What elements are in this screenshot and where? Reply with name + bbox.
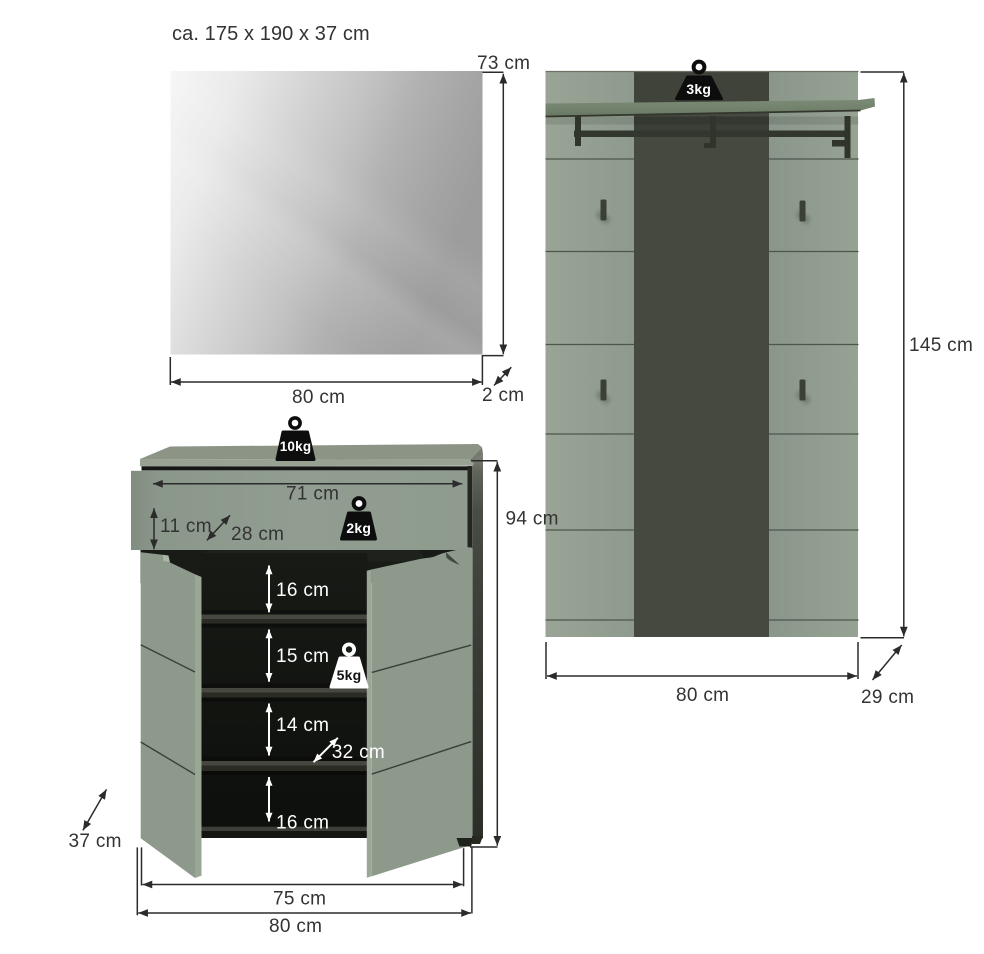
svg-text:29 cm: 29 cm xyxy=(861,687,914,708)
svg-text:28 cm: 28 cm xyxy=(231,524,284,545)
svg-text:71 cm: 71 cm xyxy=(286,484,339,505)
svg-text:80 cm: 80 cm xyxy=(292,387,345,408)
svg-text:80 cm: 80 cm xyxy=(676,685,729,706)
svg-text:5kg: 5kg xyxy=(337,667,362,683)
svg-text:16 cm: 16 cm xyxy=(276,813,329,834)
svg-text:3kg: 3kg xyxy=(686,81,711,97)
svg-text:16 cm: 16 cm xyxy=(276,580,329,601)
svg-text:11 cm: 11 cm xyxy=(160,516,212,537)
svg-text:37 cm: 37 cm xyxy=(69,831,122,852)
svg-text:145 cm: 145 cm xyxy=(909,335,973,356)
svg-text:10kg: 10kg xyxy=(280,439,312,454)
svg-text:80 cm: 80 cm xyxy=(269,916,322,937)
svg-text:14 cm: 14 cm xyxy=(276,715,329,736)
svg-text:2 cm: 2 cm xyxy=(482,385,524,406)
svg-text:94 cm: 94 cm xyxy=(506,509,559,530)
svg-text:2kg: 2kg xyxy=(346,520,371,536)
svg-text:32 cm: 32 cm xyxy=(332,742,385,763)
svg-text:73 cm: 73 cm xyxy=(477,53,530,74)
svg-text:15 cm: 15 cm xyxy=(276,646,329,667)
svg-text:75 cm: 75 cm xyxy=(273,889,326,910)
svg-text:ca. 175 x 190 x 37 cm: ca. 175 x 190 x 37 cm xyxy=(172,23,370,45)
